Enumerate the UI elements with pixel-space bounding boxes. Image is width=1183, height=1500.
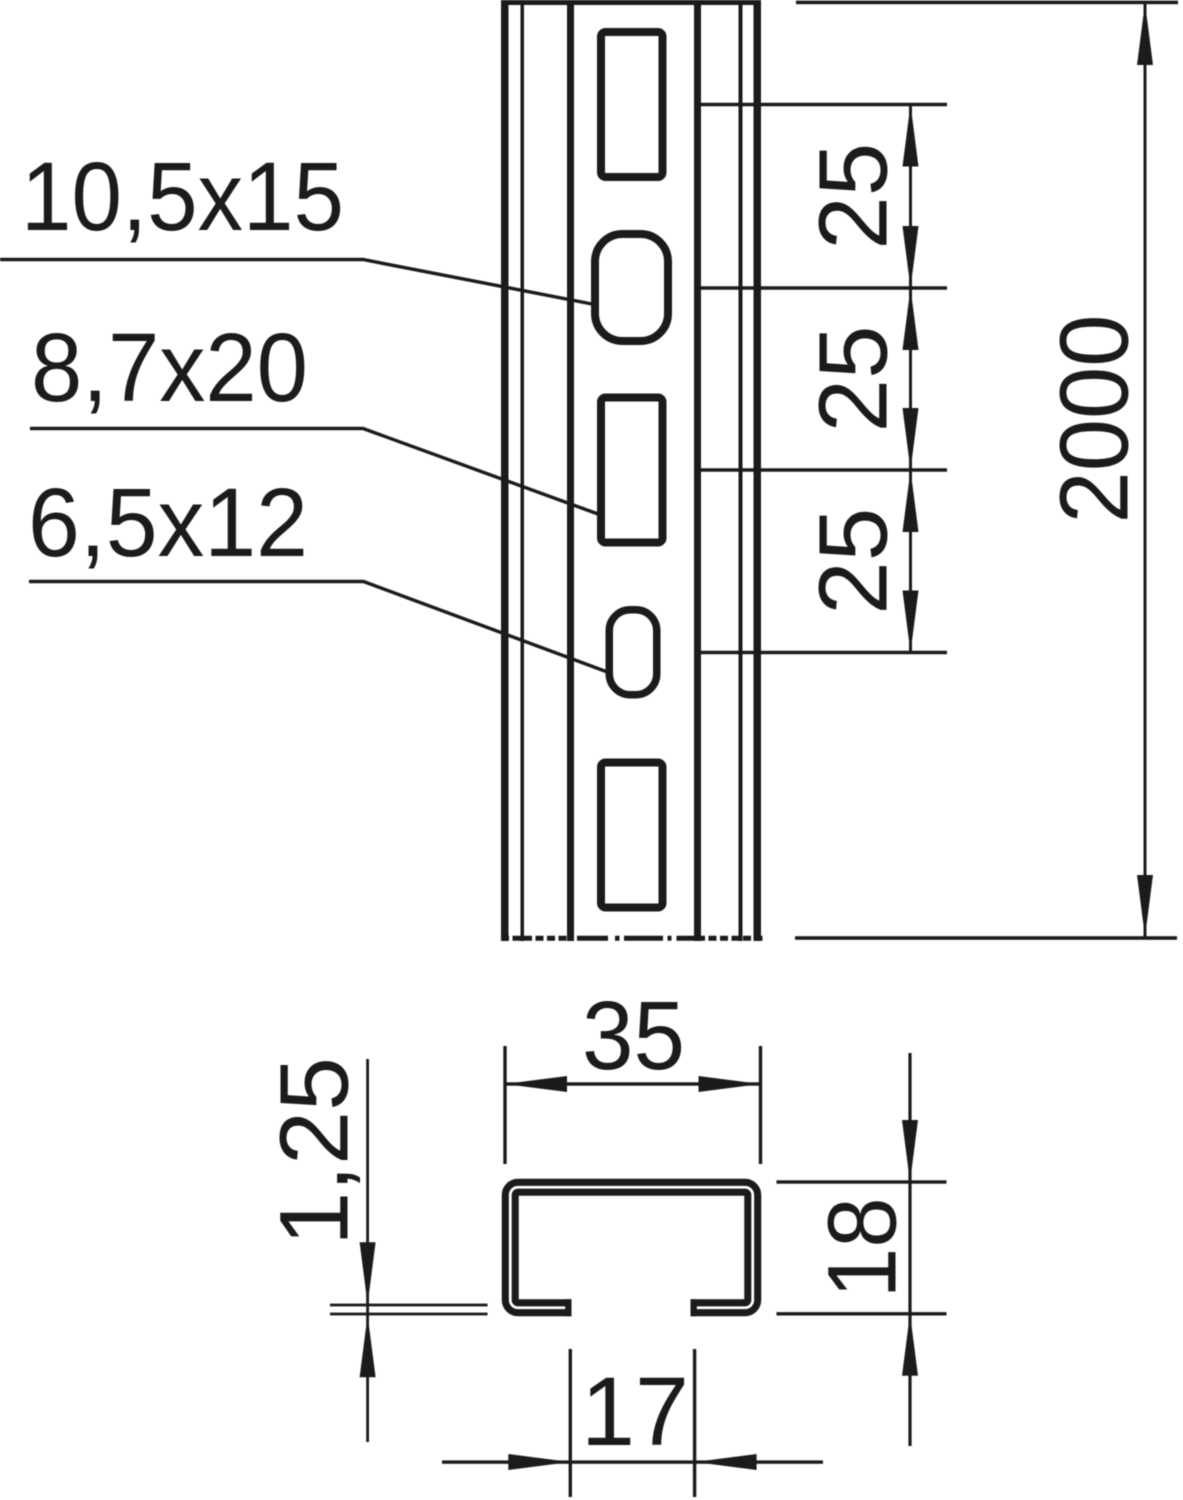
svg-text:2000: 2000 xyxy=(1040,315,1149,524)
svg-text:25: 25 xyxy=(799,508,908,615)
svg-text:8,7x20: 8,7x20 xyxy=(31,313,308,422)
svg-text:35: 35 xyxy=(582,981,685,1090)
svg-text:25: 25 xyxy=(799,326,908,433)
svg-text:25: 25 xyxy=(799,143,908,250)
svg-text:6,5x12: 6,5x12 xyxy=(28,468,308,577)
svg-text:10,5x15: 10,5x15 xyxy=(21,142,344,251)
svg-text:18: 18 xyxy=(808,1197,917,1298)
svg-text:1,25: 1,25 xyxy=(260,1057,369,1246)
svg-text:17: 17 xyxy=(581,1357,689,1466)
